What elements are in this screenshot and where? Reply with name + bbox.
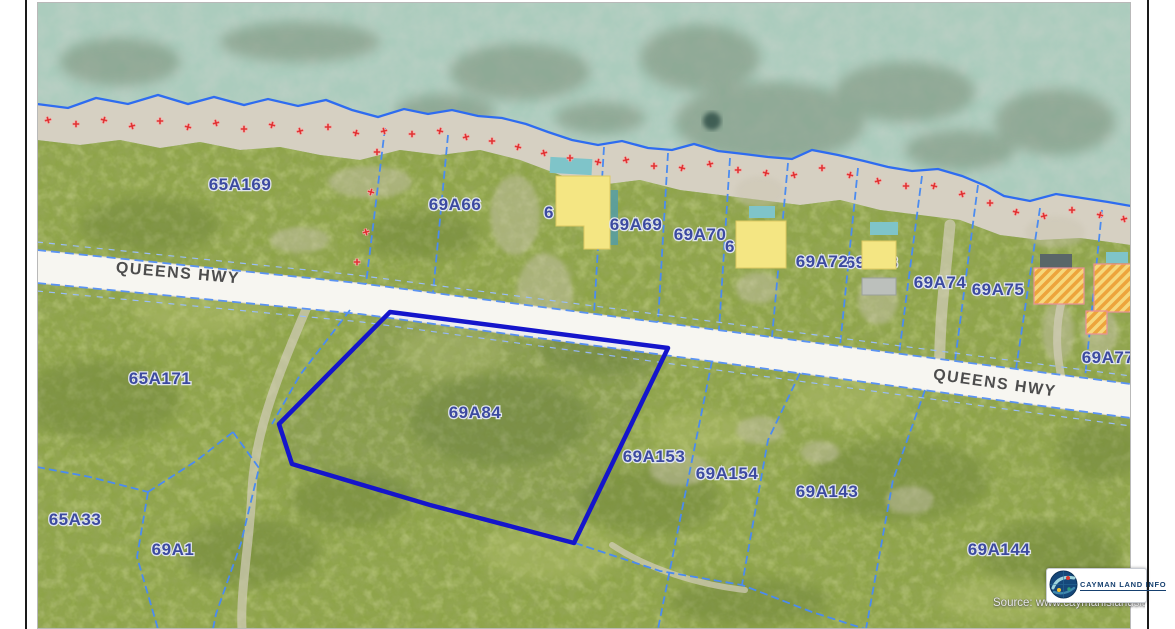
parcel-label-65A171: 65A171 (129, 369, 192, 388)
parcel-label-69A66: 69A66 (429, 195, 482, 214)
map-canvas[interactable]: 69A73 65A169 69A66 6 69A69 69A70 6 69A72… (0, 0, 1175, 629)
logo-text: CAYMAN LAND INFO (1080, 580, 1166, 591)
parcel-label-69A75: 69A75 (972, 280, 1025, 299)
parcel-label-69A74: 69A74 (914, 273, 967, 292)
parcel-label-65A33: 65A33 (49, 510, 102, 529)
building-hatched (1034, 268, 1084, 304)
parcel-label-69A154: 69A154 (696, 464, 759, 483)
parcel-label-69A153: 69A153 (623, 447, 686, 466)
globe-icon (1048, 569, 1079, 600)
pool (870, 222, 898, 235)
parcel-label-69A143: 69A143 (796, 482, 859, 501)
parcel-label-69A72: 69A72 (796, 252, 849, 271)
parcel-label-69A84: 69A84 (449, 403, 502, 422)
building (736, 221, 786, 268)
left-border-line (25, 0, 27, 629)
building (862, 241, 896, 269)
right-border-line (1147, 0, 1149, 629)
building-hatched (1094, 264, 1131, 312)
building-gray (862, 278, 896, 295)
building-hatched (1086, 311, 1107, 334)
map-page: 69A73 65A169 69A66 6 69A69 69A70 6 69A72… (0, 0, 1175, 629)
parcel-label-69A1: 69A1 (152, 540, 195, 559)
parcel-label-69A69: 69A69 (610, 215, 663, 234)
parcel-label-69A70: 69A70 (674, 225, 727, 244)
reef-hole (703, 112, 721, 130)
pool (749, 206, 775, 218)
cayman-land-info-logo: CAYMAN LAND INFO (1046, 568, 1147, 603)
parcel-label-65A169: 65A169 (209, 175, 272, 194)
pool (1106, 252, 1128, 263)
parcel-label-69A144: 69A144 (968, 540, 1031, 559)
parcel-label-partial-2: 6 (725, 237, 735, 256)
parcel-label-69A77: 69A77 (1082, 348, 1135, 367)
parcel-label-partial-1: 6 (544, 203, 554, 222)
